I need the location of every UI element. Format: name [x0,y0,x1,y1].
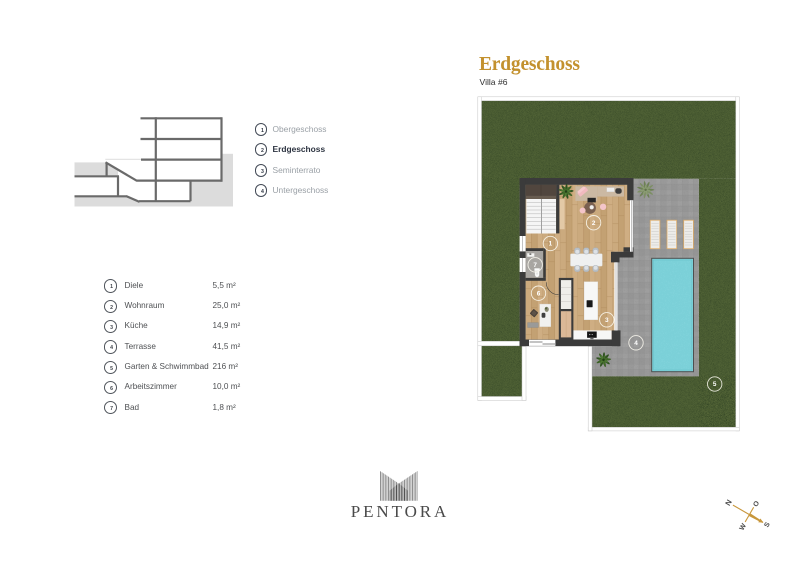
svg-text:1: 1 [549,241,553,248]
svg-text:N: N [723,498,734,507]
svg-text:W: W [739,522,749,532]
svg-text:5: 5 [713,381,717,388]
svg-text:S: S [763,521,772,529]
svg-text:3: 3 [605,317,609,324]
svg-text:4: 4 [634,340,638,347]
svg-text:O: O [752,499,761,508]
svg-text:6: 6 [537,290,541,297]
svg-text:2: 2 [592,220,596,227]
svg-text:7: 7 [533,262,537,269]
